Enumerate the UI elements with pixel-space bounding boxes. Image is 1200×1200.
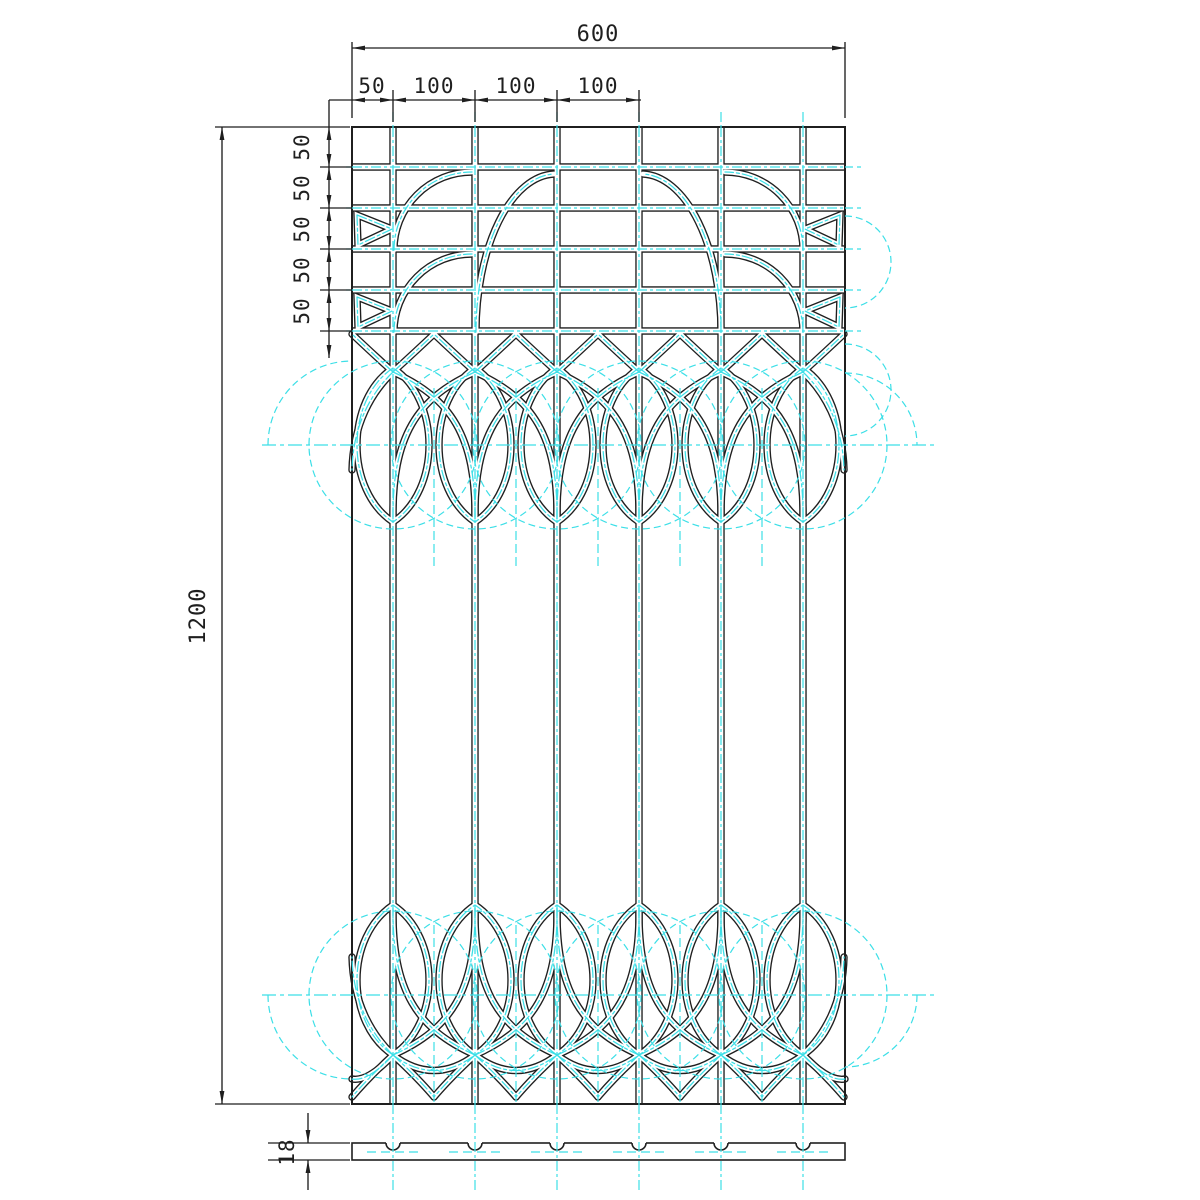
dim-chain-100c-label: 100 bbox=[578, 74, 619, 98]
dim-vchain-50-1: 50 bbox=[290, 133, 314, 160]
dim-vchain-50-3: 50 bbox=[290, 215, 314, 242]
dim-vchain-50-2: 50 bbox=[290, 174, 314, 201]
dim-overall-width-label: 600 bbox=[577, 22, 620, 47]
grille-panel-drawing: 600 50 100 100 100 50 50 50 50 50 1200 1… bbox=[0, 0, 1200, 1200]
dim-chain-100a-label: 100 bbox=[414, 74, 455, 98]
dim-chain-50-label: 50 bbox=[358, 74, 385, 98]
dim-vchain-50-5: 50 bbox=[290, 297, 314, 324]
dim-vchain-50-4: 50 bbox=[290, 256, 314, 283]
dim-overall-height-label: 1200 bbox=[186, 588, 211, 645]
technical-drawing-page: 600 50 100 100 100 50 50 50 50 50 1200 1… bbox=[0, 0, 1200, 1200]
dim-chain-100b-label: 100 bbox=[496, 74, 537, 98]
